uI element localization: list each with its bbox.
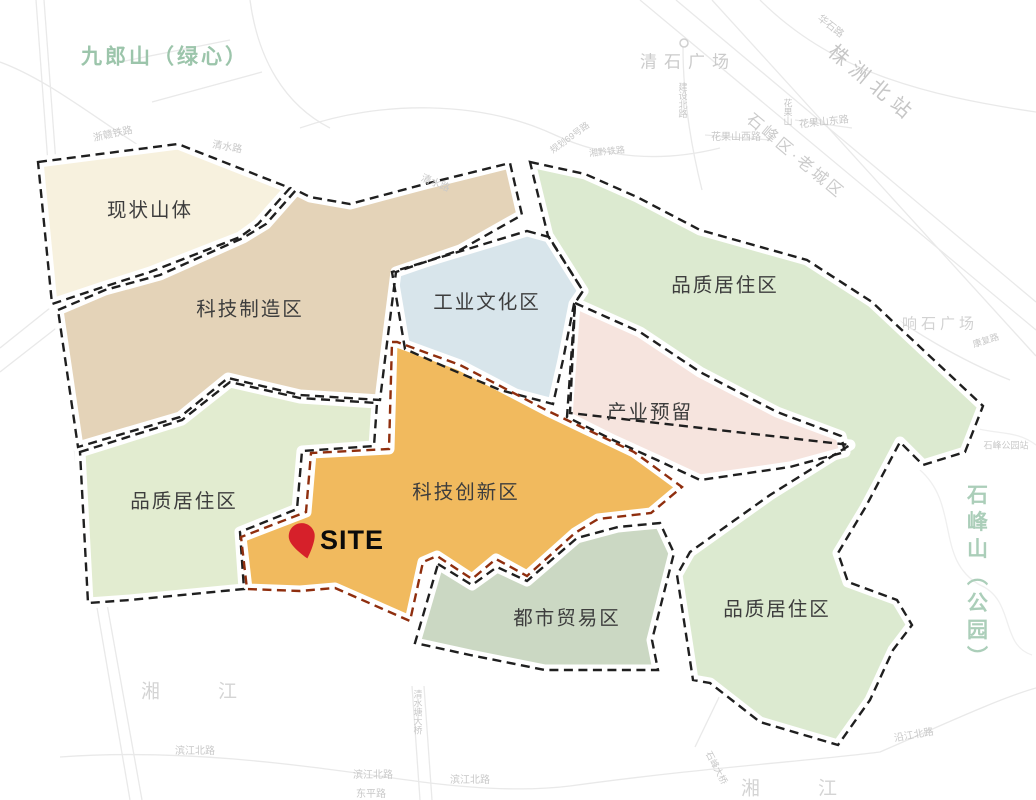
road-line (683, 47, 702, 190)
contour-line (920, 470, 1032, 655)
road-line (120, 40, 230, 62)
road-line (300, 108, 720, 157)
road-line (152, 72, 262, 102)
map-canvas (0, 0, 1036, 800)
road-line (0, 322, 64, 372)
planning-map: SITE 品质居住区产业预留工业文化区科技制造区现状山体品质居住区科技创新区都市… (0, 0, 1036, 800)
station-marker (680, 39, 688, 47)
road-line (760, 0, 1036, 112)
road-line (250, 0, 330, 128)
